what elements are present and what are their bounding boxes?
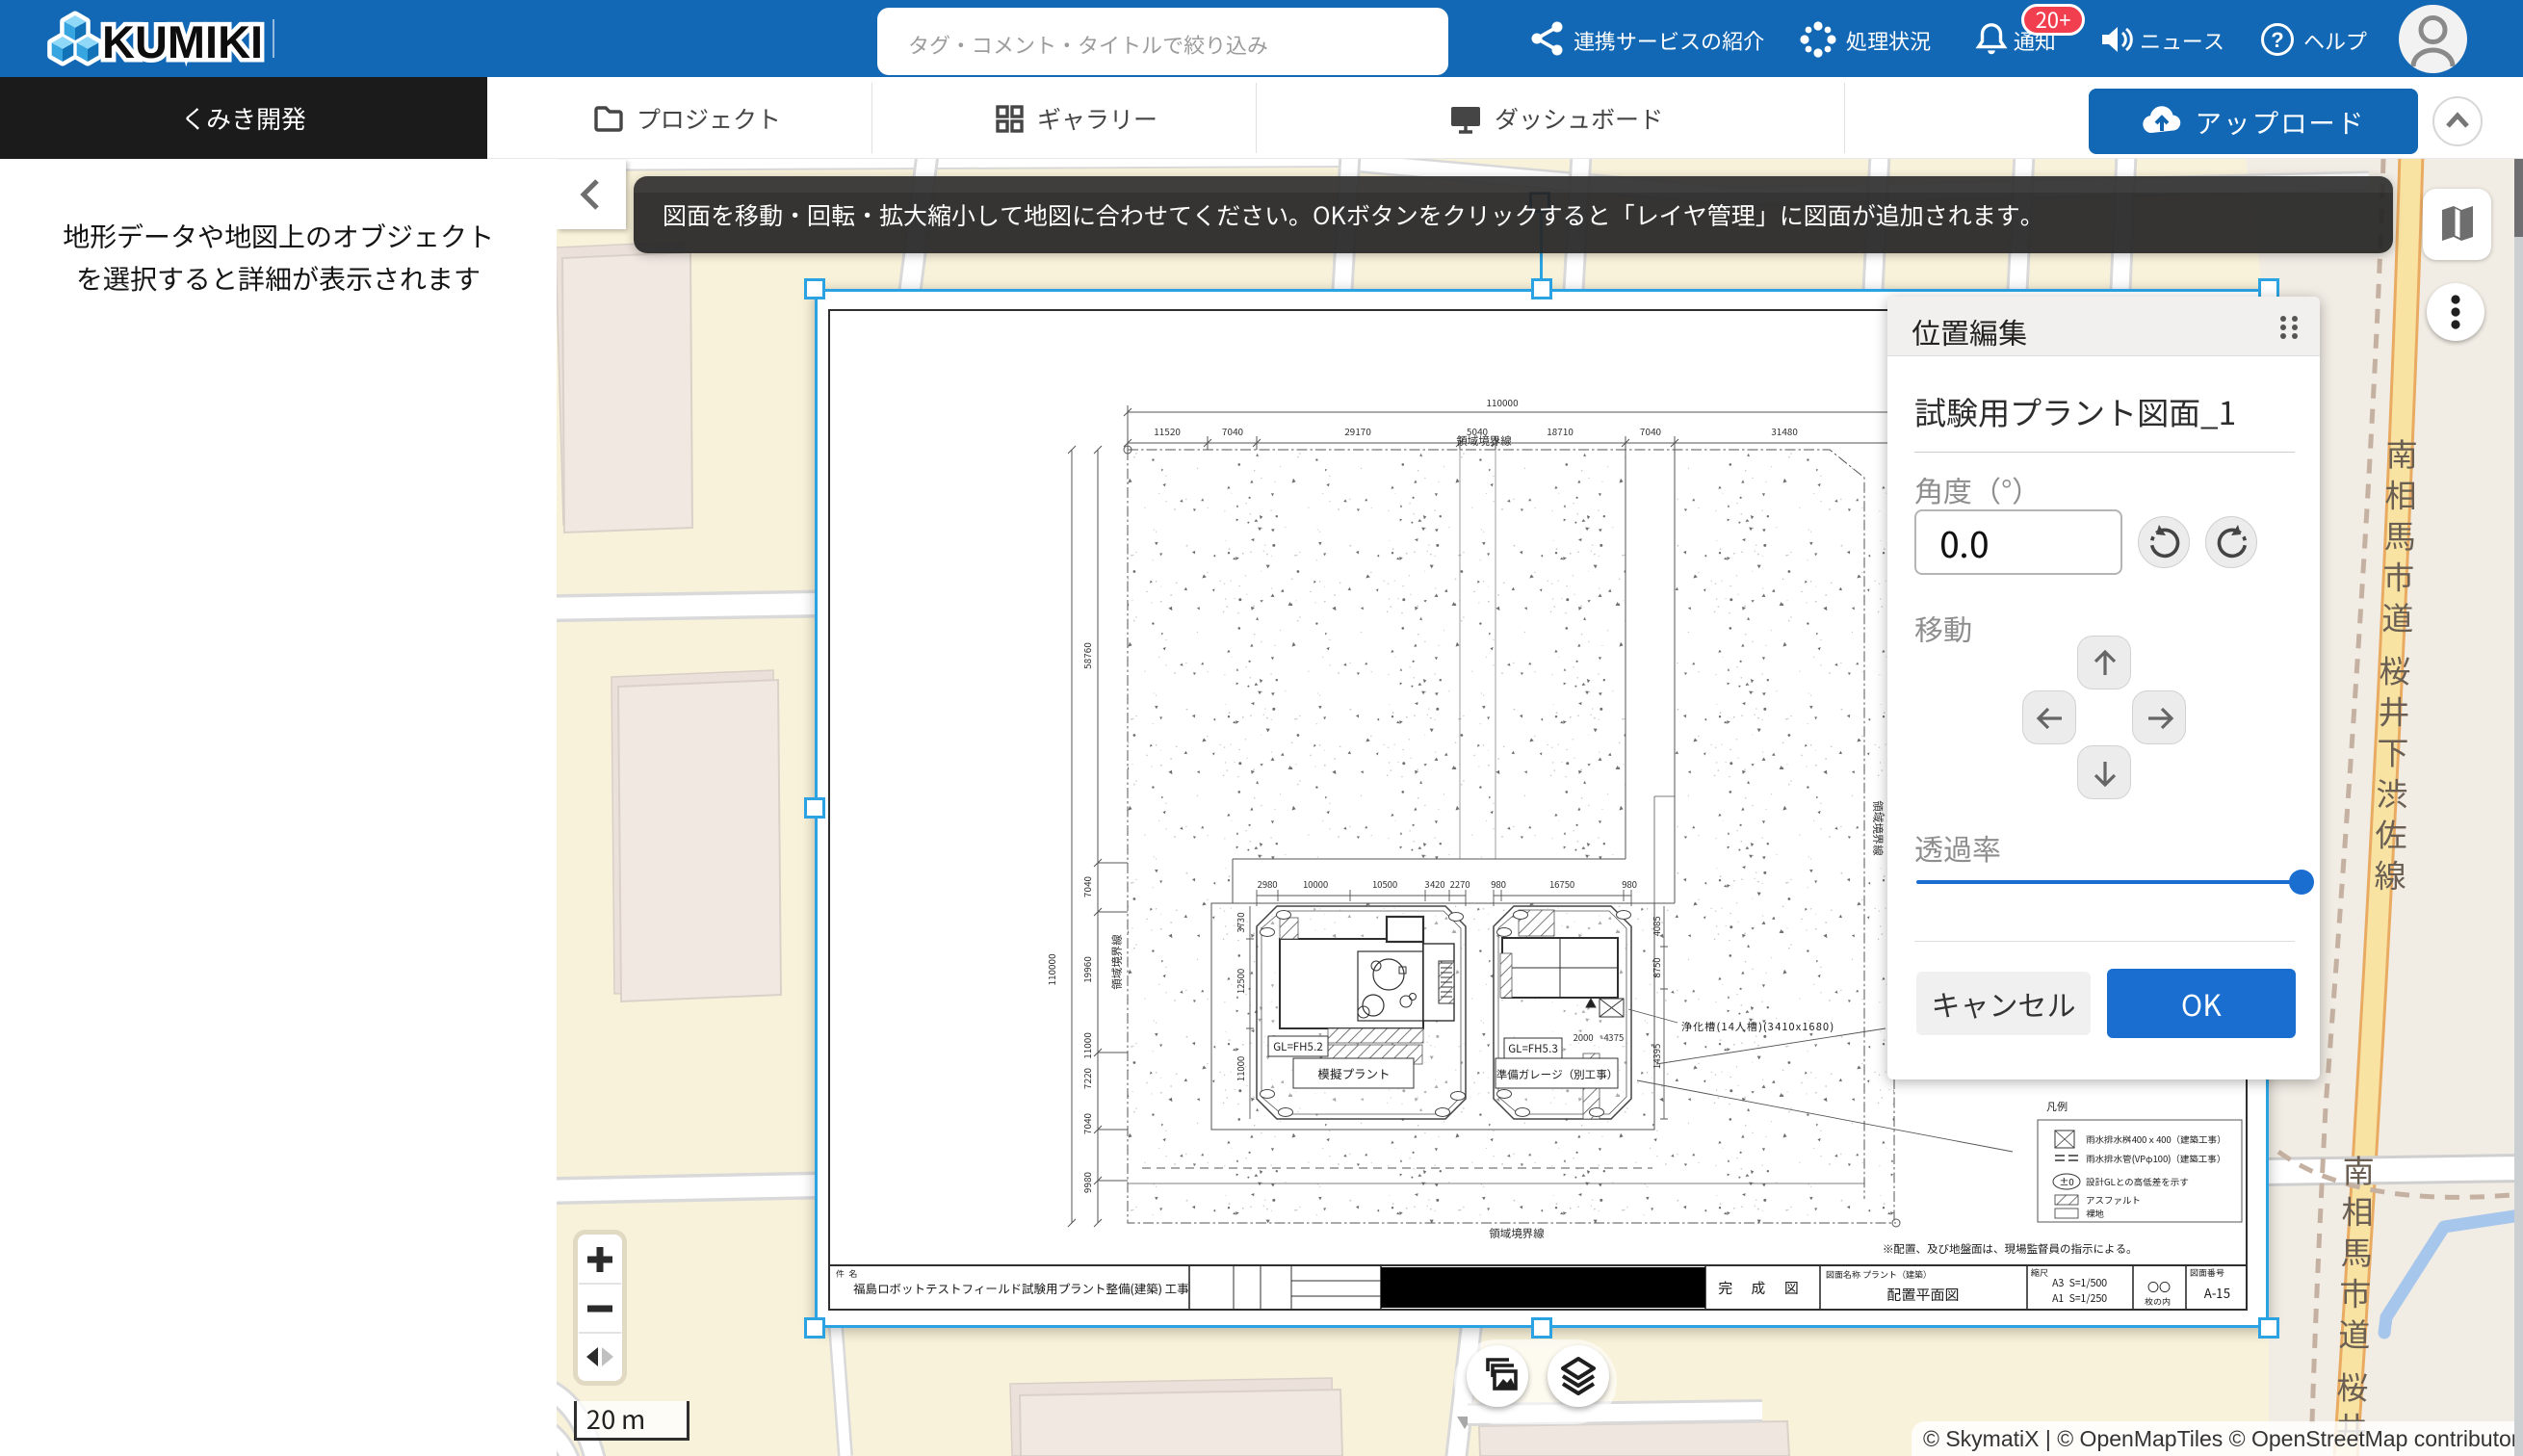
svg-text:?: ? xyxy=(2271,28,2283,52)
svg-text:KUMIKI: KUMIKI xyxy=(102,16,263,67)
